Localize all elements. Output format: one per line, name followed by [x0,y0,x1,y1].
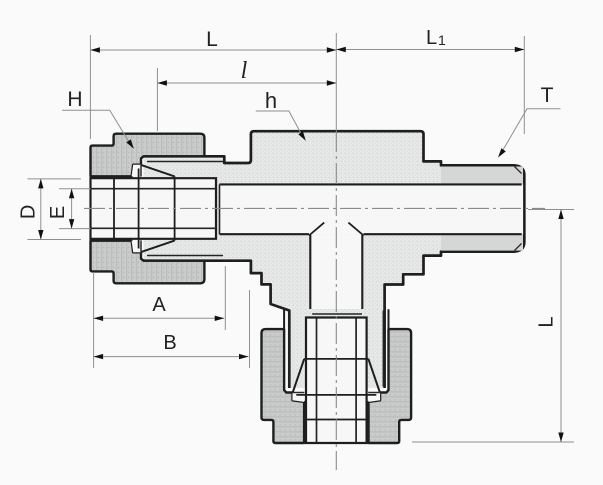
svg-text:L: L [535,316,557,327]
svg-text:h: h [265,88,277,113]
svg-text:L: L [206,28,218,51]
svg-text:A: A [152,294,166,316]
svg-text:l: l [241,58,248,84]
svg-text:T: T [541,84,554,107]
svg-text:B: B [163,332,176,354]
svg-text:L: L [426,27,437,49]
svg-text:1: 1 [438,32,446,48]
svg-text:H: H [67,88,82,111]
svg-text:D: D [17,205,39,219]
svg-text:E: E [47,206,69,219]
